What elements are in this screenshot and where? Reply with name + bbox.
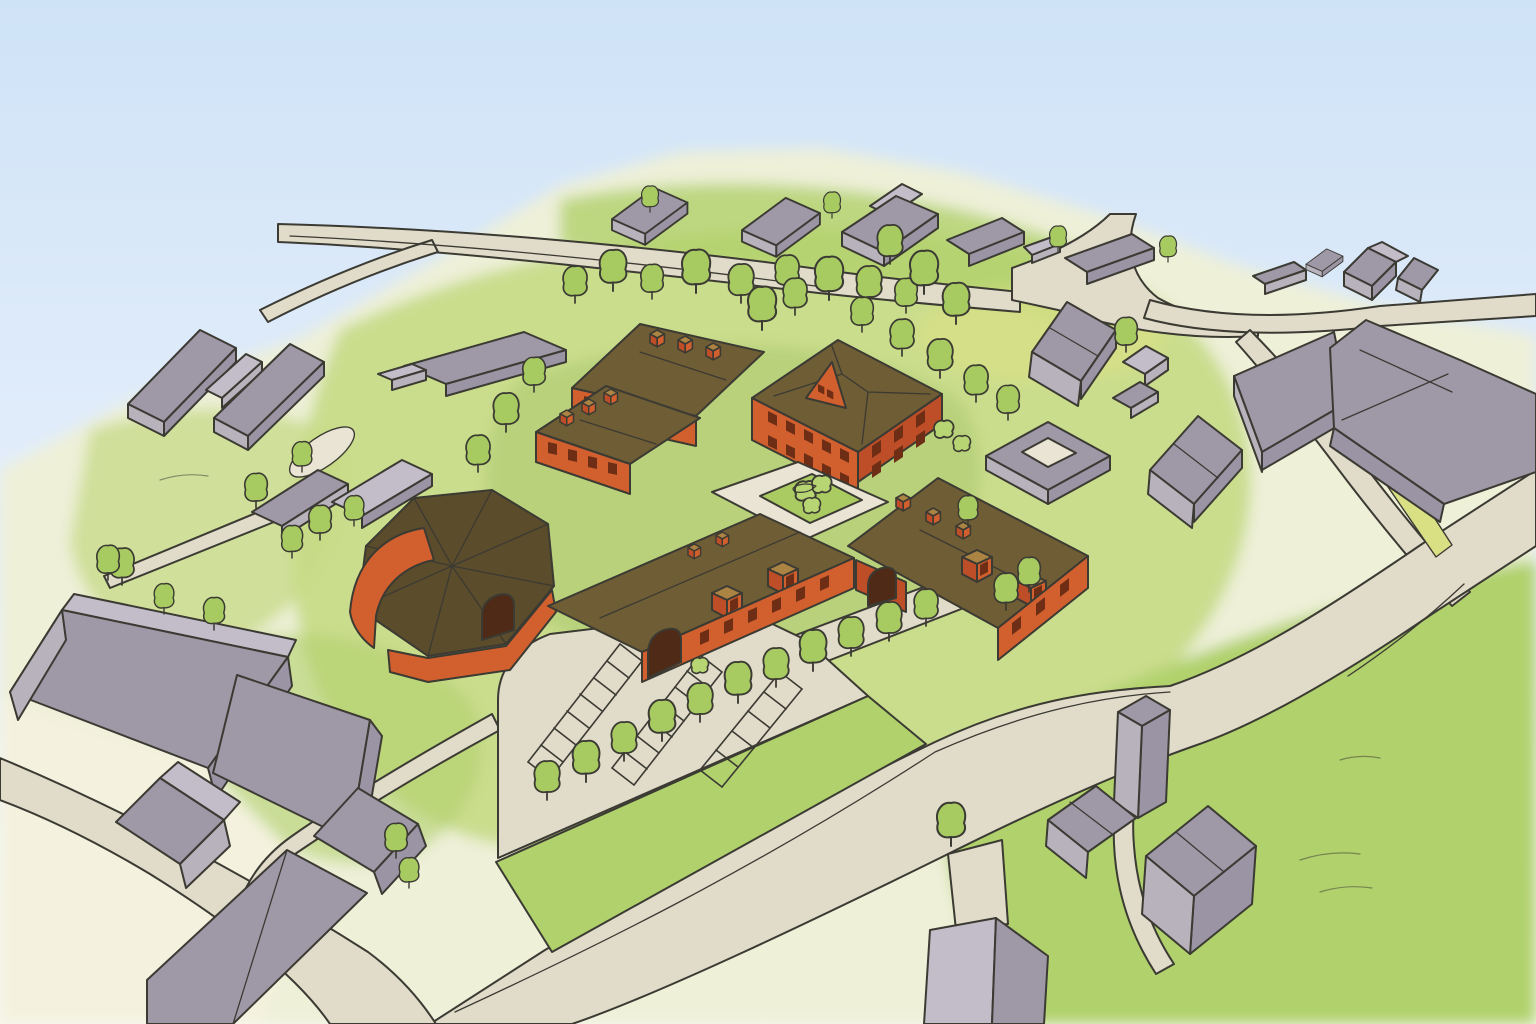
bush — [934, 420, 954, 438]
illustration-stage — [0, 0, 1536, 1024]
arch-east — [868, 567, 896, 606]
driveway-south-house — [948, 840, 1008, 930]
house-tall — [1114, 696, 1170, 818]
aerial-watercolor-illustration — [0, 0, 1536, 1024]
bush — [953, 436, 970, 452]
bush — [691, 658, 708, 674]
